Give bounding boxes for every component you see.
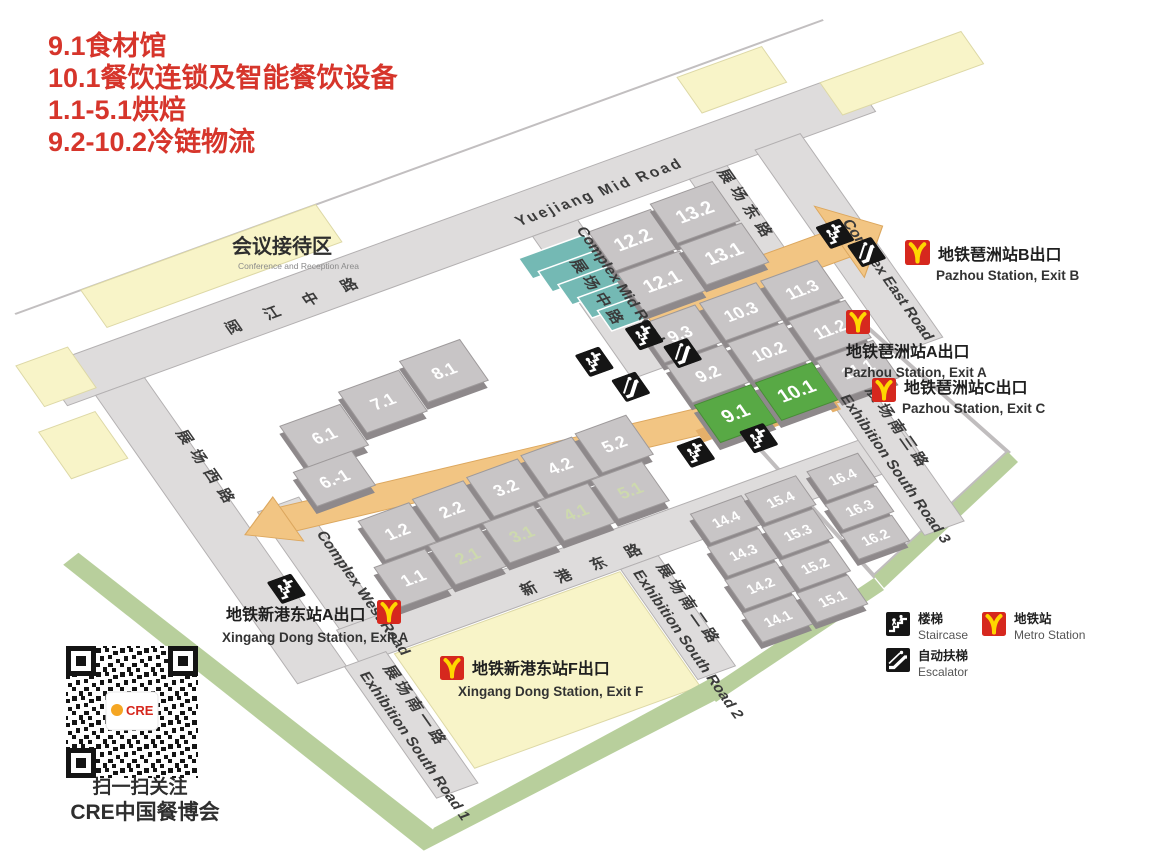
qr-center-logo: CRE	[106, 692, 158, 730]
metro-station-icon	[905, 240, 930, 265]
qr-code: CRE 扫一扫关注 CRE中国餐博会	[66, 646, 220, 824]
svg-text:地铁站: 地铁站	[1014, 611, 1052, 626]
svg-text:地铁新港东站A出口: 地铁新港东站A出口	[226, 605, 366, 624]
escalator-icon	[886, 648, 910, 672]
svg-text:Pazhou Station, Exit B: Pazhou Station, Exit B	[936, 268, 1080, 283]
metro-station-icon	[440, 656, 464, 680]
title-line-4: 9.2-10.2冷链物流	[48, 126, 255, 157]
qr-caption-2: CRE中国餐博会	[70, 800, 219, 824]
svg-text:地铁新港东站F出口: 地铁新港东站F出口	[472, 659, 610, 678]
title-line-3: 1.1-5.1烘焙	[48, 94, 186, 125]
escalator-icon	[611, 371, 651, 402]
map-canvas: 12.2 12.1 13.2 13.1 9.3 10.3 11.3 9.2 10…	[0, 0, 1175, 859]
svg-text:Metro Station: Metro Station	[1014, 628, 1085, 642]
metro-station-icon	[846, 310, 870, 334]
svg-text:Escalator: Escalator	[918, 665, 968, 679]
svg-text:地铁琶洲站C出口: 地铁琶洲站C出口	[904, 378, 1028, 397]
svg-text:Staircase: Staircase	[918, 628, 968, 642]
title-line-1: 9.1食材馆	[48, 30, 167, 61]
svg-text:自动扶梯: 自动扶梯	[918, 648, 969, 663]
qr-finder-bottom-left	[66, 748, 96, 778]
title-line-2: 10.1餐饮连锁及智能餐饮设备	[48, 62, 399, 93]
metro-station-icon	[982, 612, 1006, 636]
qr-finder-top-left	[66, 646, 96, 676]
qr-finder-top-right	[168, 646, 198, 676]
metro-exit-pazhou-b: 地铁琶洲站B出口 Pazhou Station, Exit B	[905, 240, 1080, 283]
svg-text:CRE: CRE	[126, 703, 154, 718]
metro-exit-xingang-a: 地铁新港东站A出口 Xingang Dong Station, Exit A	[222, 600, 408, 645]
yellow-strip-north-east	[820, 31, 984, 115]
svg-text:地铁琶洲站B出口: 地铁琶洲站B出口	[938, 245, 1062, 264]
svg-text:Pazhou Station, Exit C: Pazhou Station, Exit C	[902, 401, 1046, 416]
metro-station-icon	[377, 600, 401, 624]
page-title: 9.1食材馆 10.1餐饮连锁及智能餐饮设备 1.1-5.1烘焙 9.2-10.…	[48, 30, 399, 157]
svg-text:Pazhou Station, Exit A: Pazhou Station, Exit A	[844, 365, 987, 380]
venue-map-poster: 12.2 12.1 13.2 13.1 9.3 10.3 11.3 9.2 10…	[0, 0, 1175, 859]
svg-text:会议接待区: 会议接待区	[232, 234, 332, 258]
metro-station-icon	[872, 378, 896, 402]
staircase-icon	[886, 612, 910, 636]
staircase-icon	[574, 346, 614, 377]
legend: 楼梯 Staircase 地铁站 Metro Station 自动扶梯 Esca…	[886, 611, 1085, 679]
svg-text:地铁琶洲站A出口: 地铁琶洲站A出口	[846, 342, 970, 361]
qr-caption-1: 扫一扫关注	[92, 775, 187, 798]
svg-text:Xingang Dong Station, Exit F: Xingang Dong Station, Exit F	[458, 684, 643, 699]
svg-text:楼梯: 楼梯	[918, 611, 944, 626]
staircase-icon	[676, 437, 716, 468]
svg-text:Conference and Reception Area: Conference and Reception Area	[238, 261, 359, 271]
svg-text:Xingang Dong Station, Exit A: Xingang Dong Station, Exit A	[222, 630, 408, 645]
